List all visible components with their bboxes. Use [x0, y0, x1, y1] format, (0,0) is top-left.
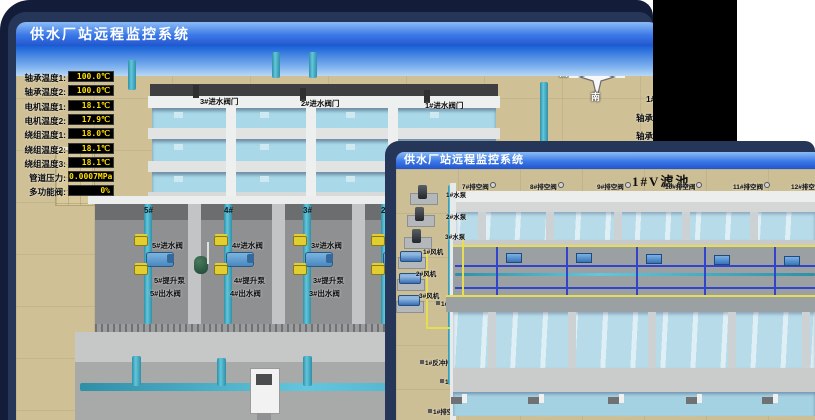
gallery-tank: [646, 254, 662, 264]
bay-divider: [352, 204, 365, 324]
gallery-tank: [506, 253, 522, 263]
lift-pump[interactable]: [305, 252, 333, 267]
basin-post: [174, 176, 183, 182]
drain-pump[interactable]: [451, 397, 462, 404]
valve-label[interactable]: 4#进水阀: [232, 240, 263, 251]
valve-label[interactable]: 7#排空阀: [462, 181, 496, 191]
panel-led: 0%: [68, 185, 114, 196]
basin-post: [346, 112, 355, 118]
outlet-valve-icon[interactable]: [214, 265, 228, 275]
drain-pump-pipe: [773, 394, 778, 403]
surge-tank-pole: [207, 242, 209, 264]
basin-post: [430, 112, 439, 118]
intake-valve-icon[interactable]: [193, 85, 199, 98]
upper-wall2: [456, 202, 815, 212]
basin-post: [346, 176, 355, 182]
drain-pump[interactable]: [608, 397, 619, 404]
cell-divider: [728, 312, 736, 368]
cell-divider: [488, 312, 496, 368]
panel-row-label: 绕组温度3:: [16, 158, 66, 170]
gallery-riser: [704, 247, 706, 295]
valve-label[interactable]: 3#进水阀门: [200, 96, 238, 107]
intake-basin-rim: [150, 84, 498, 96]
cell-divider: [648, 312, 656, 368]
gallery-riser: [774, 247, 776, 295]
cell-divider: [750, 212, 758, 240]
drain-pump[interactable]: [762, 397, 773, 404]
panel-row-label: 管道压力:: [16, 172, 66, 184]
riser-pipe: [272, 52, 280, 78]
valve-label[interactable]: 5#进水阀: [152, 240, 183, 251]
gallery-tank: [714, 255, 730, 265]
riser-pipe: [303, 356, 312, 386]
gallery-riser: [496, 247, 498, 295]
basin-post: [260, 176, 269, 182]
water-pump[interactable]: [415, 207, 424, 221]
intake-basin-wall: [148, 128, 500, 139]
intake-basin-water: [152, 108, 496, 128]
front-window-titlebar[interactable]: 供水厂站远程监控系统: [396, 152, 815, 169]
air-pipe: [426, 327, 450, 329]
valve-label[interactable]: 3#进水阀: [311, 240, 342, 251]
riser-pipe: [128, 60, 136, 90]
valve-label[interactable]: 8#排空阀: [530, 181, 564, 191]
water-pump[interactable]: [418, 185, 427, 199]
basin-post: [260, 144, 269, 150]
gallery-riser: [566, 247, 568, 295]
gallery-riser: [636, 247, 638, 295]
inlet-valve-icon[interactable]: [214, 236, 228, 246]
desktop-background: 供水厂站远程监控系统 取水泵房 北 西 南 1# 轴承温度1: 轴承温度2: 5…: [0, 0, 815, 420]
flow-meter-display: [256, 374, 272, 385]
valve-label[interactable]: 4#出水阀: [230, 288, 261, 299]
valve-label[interactable]: 3#出水阀: [309, 288, 340, 299]
drain-pump-pipe: [539, 394, 544, 403]
backwash-water-pipe: [455, 265, 815, 267]
right-panel-header: 1#: [646, 94, 653, 104]
compass-south: 南: [591, 90, 600, 103]
drain-pump-pipe: [619, 394, 624, 403]
panel-row-label: 绕组温度2:: [16, 144, 66, 156]
equipment-label[interactable]: 1#水泵: [446, 189, 466, 199]
drain-pump-pipe: [462, 394, 467, 403]
air-pipe: [462, 239, 464, 297]
blower[interactable]: [398, 295, 420, 306]
basin-post: [174, 144, 183, 150]
pump-label[interactable]: 3#提升泵: [313, 275, 344, 286]
pump-label[interactable]: 4#提升泵: [234, 275, 265, 286]
outlet-valve-icon[interactable]: [134, 265, 148, 275]
upper-wall: [456, 191, 815, 202]
right-panel-label: 轴承温度1:: [636, 112, 653, 124]
backwash-water-pipe: [455, 287, 815, 289]
basin-post: [346, 144, 355, 150]
valve-label[interactable]: 9#排空阀: [597, 181, 631, 191]
basin-post: [260, 112, 269, 118]
valve-label[interactable]: 1#进水阀门: [425, 100, 463, 111]
panel-led: 100.0℃: [68, 85, 114, 96]
drain-channel: [453, 392, 815, 416]
cell-divider: [614, 212, 622, 240]
equipment-label[interactable]: 2#水泵: [446, 211, 466, 221]
v-filter-scene: 1#V滤池 7#排空阀8#排空阀9#排空阀10#排空阀11#排空阀12#排空阀7…: [396, 169, 815, 420]
outlet-valve-icon[interactable]: [371, 265, 385, 275]
drain-pump-pipe: [697, 394, 702, 403]
inlet-valve-icon[interactable]: [371, 236, 385, 246]
equipment-label[interactable]: 1#风机: [423, 246, 443, 256]
pipe-gallery-lower: [446, 297, 815, 312]
back-window-titlebar[interactable]: 供水厂站远程监控系统: [16, 22, 659, 46]
valve-label[interactable]: 10#排空阀: [665, 181, 702, 191]
surge-tank: [194, 256, 208, 274]
panel-row-label: 电机温度2:: [16, 115, 66, 127]
cell-divider: [568, 312, 576, 368]
inlet-valve-icon[interactable]: [293, 236, 307, 246]
cell-divider: [682, 212, 690, 240]
equipment-label[interactable]: 3#风机: [419, 290, 439, 300]
inlet-valve-icon[interactable]: [134, 236, 148, 246]
drain-pump[interactable]: [686, 397, 697, 404]
lower-filter-cells: [453, 312, 815, 368]
panel-led: 17.9℃: [68, 114, 114, 125]
panel-led: 100.0℃: [68, 71, 114, 82]
valve-label[interactable]: 12#排空阀: [791, 181, 815, 191]
riser-pipe: [217, 358, 226, 386]
panel-row-label: 多功能阀:: [16, 186, 66, 198]
cell-divider: [546, 212, 554, 240]
bay-divider: [272, 204, 285, 324]
blower[interactable]: [400, 251, 422, 262]
panel-led: 18.1℃: [68, 157, 114, 168]
basin-post: [174, 112, 183, 118]
riser-pipe: [309, 52, 317, 78]
outlet-valve-icon[interactable]: [293, 265, 307, 275]
upper-filter-cells: [456, 212, 815, 240]
bay-number: 4#: [224, 206, 233, 215]
panel-row-label: 轴承温度2:: [16, 86, 66, 98]
valve-label[interactable]: 2#进水阀门: [301, 98, 339, 109]
panel-led: 18.1℃: [68, 100, 114, 111]
panel-led: 0.0007MPa: [68, 171, 114, 182]
cell-divider: [478, 212, 486, 240]
gallery-tank: [576, 253, 592, 263]
flow-meter-tab: [257, 413, 271, 420]
drain-pump[interactable]: [528, 397, 539, 404]
panel-row-label: 轴承温度1:: [16, 72, 66, 84]
bay-number: 5#: [144, 206, 153, 215]
panel-led: 18.0℃: [68, 128, 114, 139]
pump-label[interactable]: 5#提升泵: [154, 275, 185, 286]
riser-pipe: [132, 356, 141, 386]
basin-divider: [226, 96, 236, 201]
equipment-label[interactable]: 3#水泵: [445, 231, 465, 241]
backwash-pipe: [455, 273, 815, 276]
bay-number: 3#: [303, 206, 312, 215]
cell-divider: [802, 312, 810, 368]
panel-row-label: 电机温度1:: [16, 101, 66, 113]
panel-led: 18.1℃: [68, 143, 114, 154]
equipment-label[interactable]: 2#风机: [416, 268, 436, 278]
water-pump[interactable]: [412, 229, 421, 243]
lift-pump[interactable]: [146, 252, 174, 267]
basin-divider: [306, 96, 316, 201]
valve-label[interactable]: 5#出水阀: [150, 288, 181, 299]
inlet-strip: [453, 368, 815, 392]
gallery-tank: [784, 256, 800, 266]
panel-row-label: 绕组温度1:: [16, 129, 66, 141]
lift-pump[interactable]: [226, 252, 254, 267]
valve-label[interactable]: 11#排空阀: [733, 181, 770, 191]
screen-black-area: [653, 0, 737, 143]
